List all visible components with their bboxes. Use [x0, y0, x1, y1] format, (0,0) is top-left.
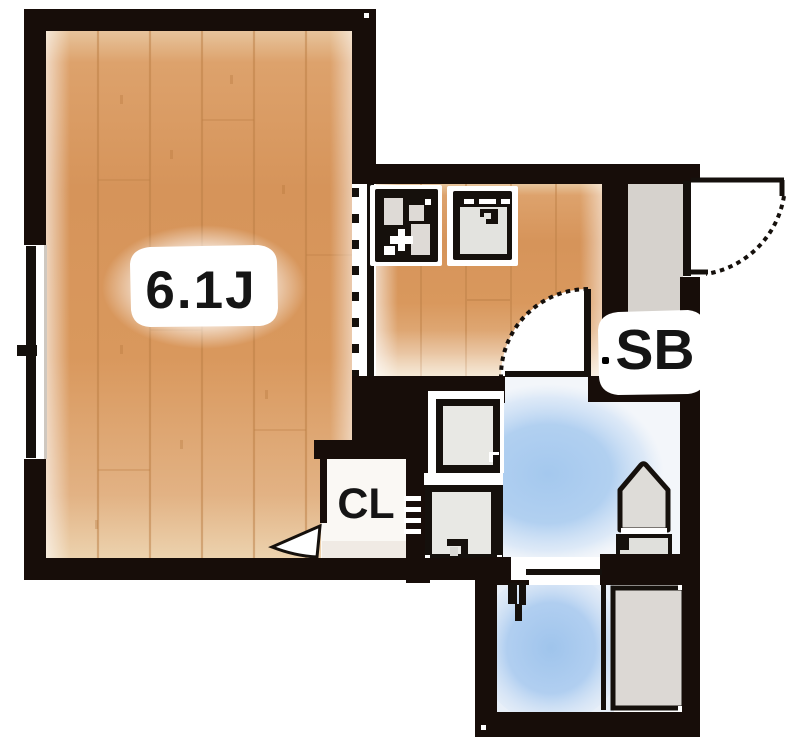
svg-text:CL: CL	[337, 480, 394, 528]
svg-text:6.1J: 6.1J	[145, 261, 256, 320]
svg-text:SB: SB	[615, 318, 694, 382]
